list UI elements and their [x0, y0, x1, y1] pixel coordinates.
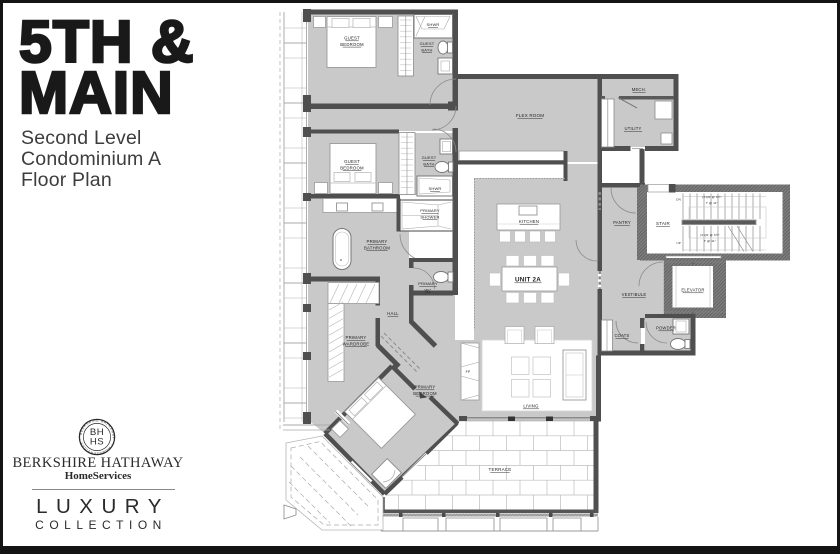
svg-text:WC: WC [424, 287, 431, 292]
svg-text:BEDROOM: BEDROOM [340, 42, 364, 47]
svg-text:STAIR: STAIR [656, 221, 670, 226]
svg-text:VESTIBULE: VESTIBULE [622, 292, 647, 297]
svg-text:BEDROOM: BEDROOM [413, 391, 437, 396]
svg-text:PRIMARY: PRIMARY [420, 208, 440, 213]
svg-text:FLEX ROOM: FLEX ROOM [516, 113, 544, 118]
svg-text:KITCHEN: KITCHEN [519, 219, 539, 224]
svg-text:PRIMARY: PRIMARY [418, 281, 438, 286]
svg-text:UP: UP [676, 241, 681, 245]
svg-text:GUEST: GUEST [420, 41, 435, 46]
svg-text:T @ 11": T @ 11" [706, 201, 718, 205]
svg-text:FP: FP [466, 370, 471, 374]
svg-text:(21)R @ 6½": (21)R @ 6½" [702, 195, 722, 199]
svg-text:WARDROBE: WARDROBE [343, 341, 370, 346]
svg-text:POWDER: POWDER [656, 326, 676, 331]
svg-text:BEDROOM: BEDROOM [340, 165, 364, 170]
svg-text:UTILITY: UTILITY [625, 126, 642, 131]
svg-text:PRIMARY: PRIMARY [346, 335, 367, 340]
svg-text:ELEVATOR: ELEVATOR [681, 288, 704, 293]
svg-text:TERRACE: TERRACE [489, 467, 512, 472]
svg-text:(21)R @ 6½": (21)R @ 6½" [700, 233, 720, 237]
svg-text:BATH: BATH [423, 161, 434, 166]
svg-text:HS: HS [90, 436, 104, 447]
svg-text:T @ 11": T @ 11" [704, 239, 716, 243]
svg-text:PRIMARY: PRIMARY [367, 239, 388, 244]
svg-text:GUEST: GUEST [344, 36, 360, 41]
svg-text:COATS: COATS [614, 333, 629, 338]
svg-text:HALL: HALL [387, 311, 399, 316]
svg-text:GUEST: GUEST [344, 159, 360, 164]
svg-text:UNIT 2A: UNIT 2A [515, 277, 541, 284]
svg-text:LIVING: LIVING [523, 404, 539, 409]
svg-text:SHOWER: SHOWER [420, 214, 439, 219]
svg-text:SHWR: SHWR [428, 186, 441, 191]
svg-text:PRIMARY: PRIMARY [415, 385, 436, 390]
svg-text:BATH: BATH [421, 47, 432, 52]
svg-text:GUEST: GUEST [422, 155, 437, 160]
svg-text:BATHROOM: BATHROOM [364, 245, 390, 250]
svg-text:PANTRY: PANTRY [613, 220, 631, 225]
svg-text:SHWR: SHWR [426, 22, 439, 27]
svg-text:MECH.: MECH. [632, 87, 647, 92]
svg-text:DN: DN [676, 198, 681, 202]
